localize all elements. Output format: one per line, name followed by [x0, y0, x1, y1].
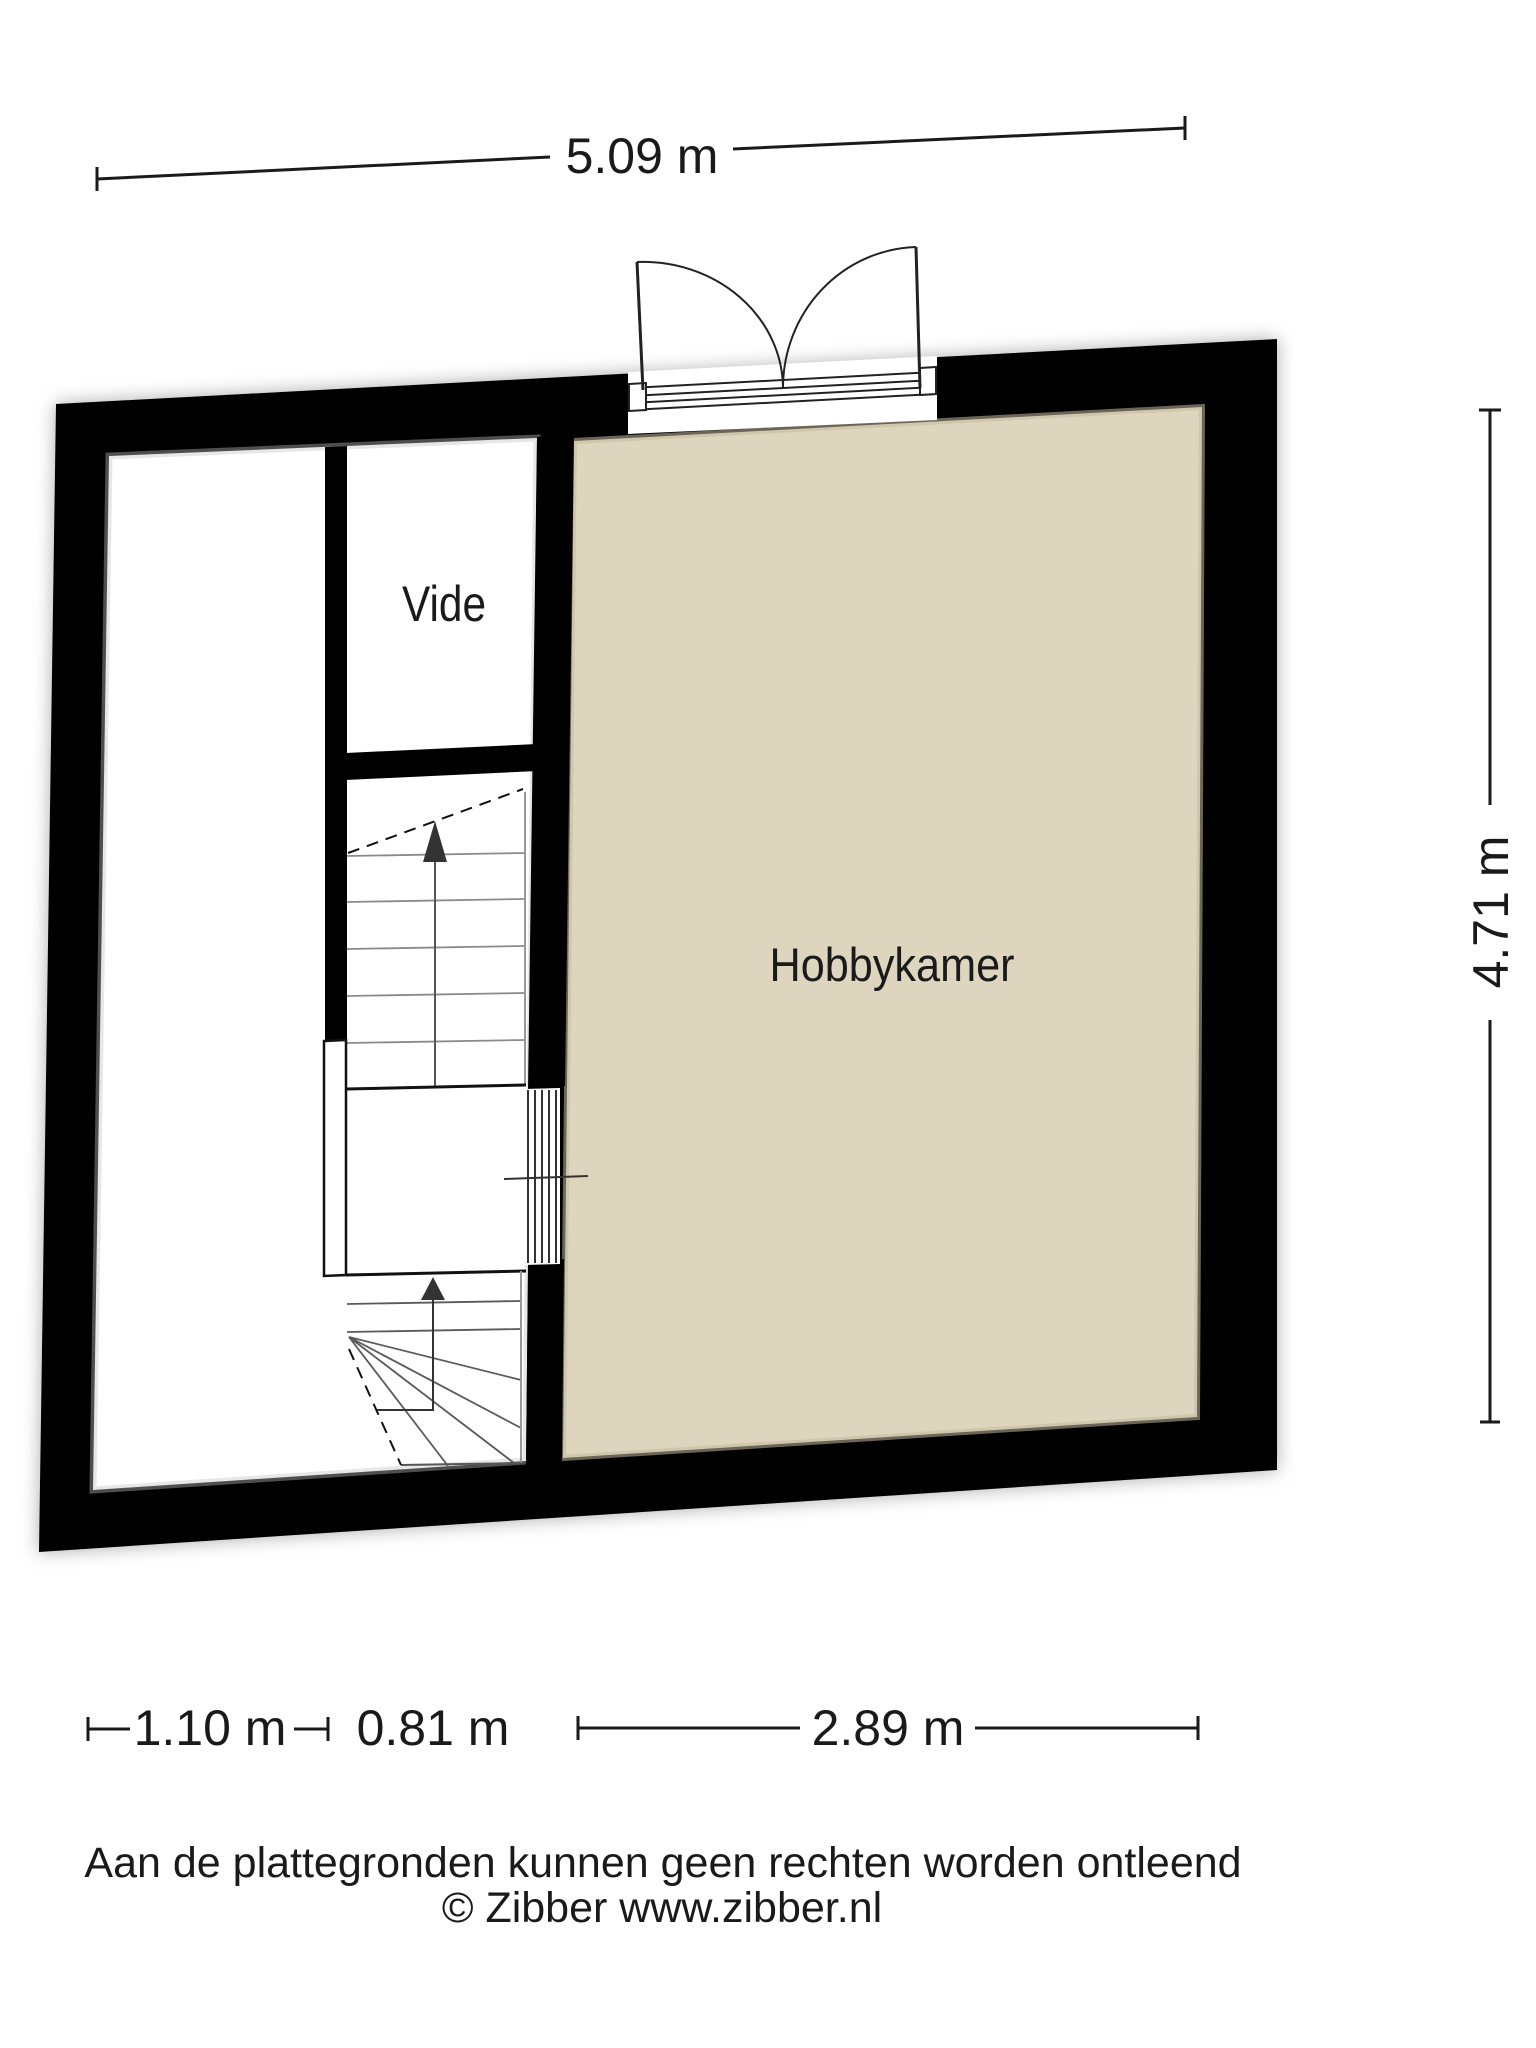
svg-text:0.81 m: 0.81 m	[357, 1700, 510, 1756]
svg-text:2.89 m: 2.89 m	[812, 1700, 965, 1756]
svg-text:5.09 m: 5.09 m	[566, 128, 719, 184]
svg-text:Aan de plattegronden kunnen ge: Aan de plattegronden kunnen geen rechten…	[84, 1839, 1241, 1887]
svg-text:4.71 m: 4.71 m	[1463, 836, 1519, 989]
svg-text:1.10 m: 1.10 m	[134, 1700, 287, 1756]
svg-text:Hobbykamer: Hobbykamer	[770, 938, 1015, 991]
svg-text:© Zibber www.zibber.nl: © Zibber www.zibber.nl	[442, 1884, 882, 1932]
svg-text:Vide: Vide	[402, 576, 486, 632]
